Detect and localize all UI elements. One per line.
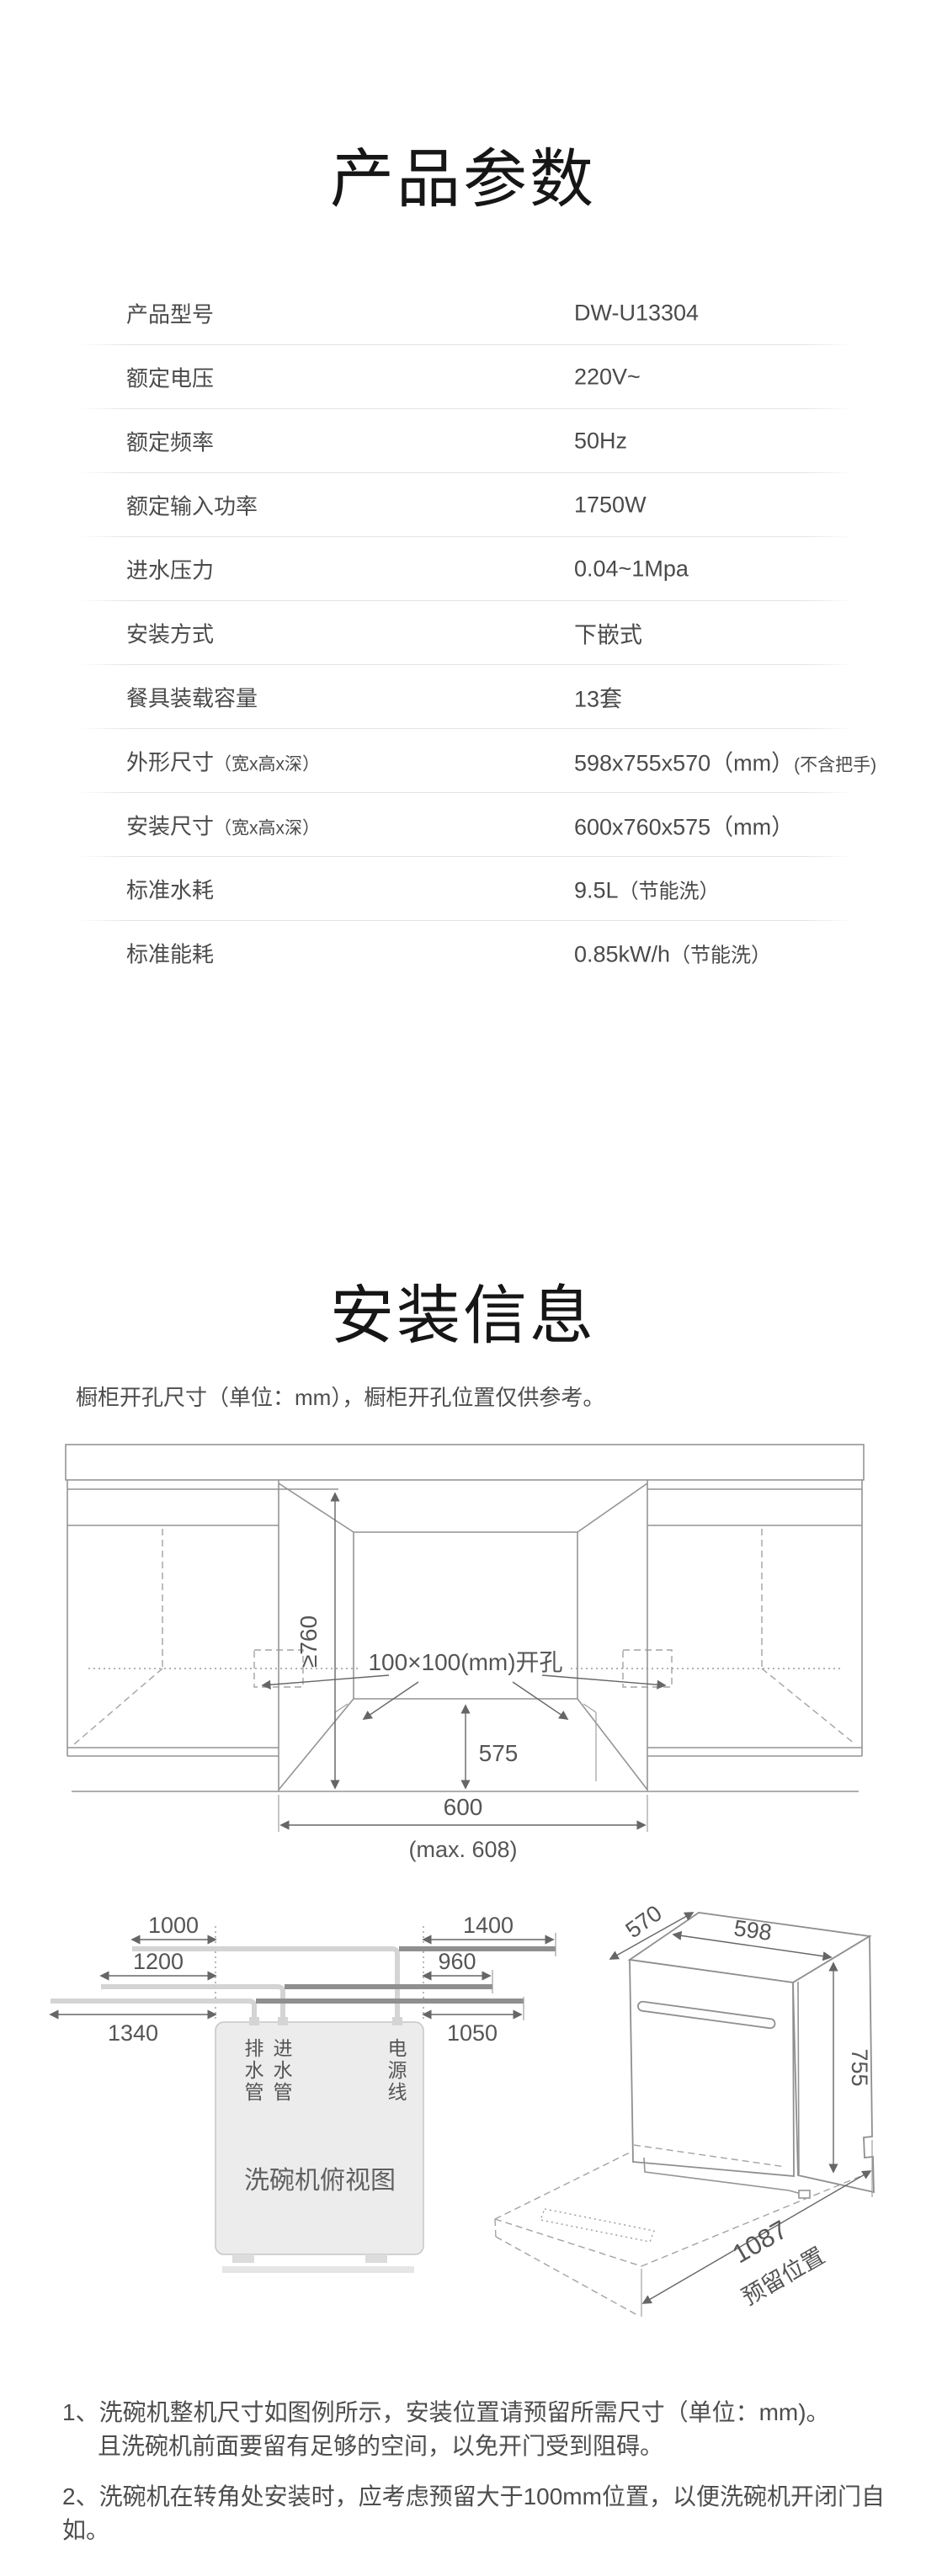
svg-text:水: 水 <box>274 2059 293 2081</box>
top-view-label: 洗碗机俯视图 <box>244 2167 396 2195</box>
power-cord-label: 电 源 线 <box>388 2037 407 2103</box>
svg-text:源: 源 <box>388 2059 407 2081</box>
dim-570-label: 570 <box>621 1900 667 1943</box>
dishwasher-body <box>630 1913 874 2198</box>
dim-1200-label: 1200 <box>133 1949 184 1974</box>
spec-label-note: （宽x高x深） <box>214 755 320 774</box>
dim-width-label: 600 <box>444 1794 483 1820</box>
right-cabinet <box>571 1480 862 1756</box>
note-2: 2、洗碗机在转角处安装时，应考虑预留大于100mm位置，以便洗碗机开闭门自如。 <box>62 2480 926 2547</box>
svg-text:电: 电 <box>388 2037 407 2059</box>
dim-755-label: 755 <box>847 2048 872 2086</box>
spec-value: DW-U13304 <box>574 301 699 326</box>
spec-value-note: （节能洗） <box>670 945 771 967</box>
dim-height-min: ≥760 <box>295 1493 335 1788</box>
note-1-line-1: 1、洗碗机整机尺寸如图例所示，安装位置请预留所需尺寸（单位：mm)。 <box>62 2396 926 2430</box>
spec-value: 220V~ <box>574 365 641 390</box>
spec-value: 50Hz <box>574 428 627 454</box>
dim-1000-label: 1000 <box>148 1913 199 1938</box>
spec-row-energy-use: 标准能耗 0.85kW/h（节能洗） <box>78 921 854 985</box>
foot <box>232 2254 254 2263</box>
spec-label: 额定频率 <box>126 430 214 455</box>
note-1-line-2: 且洗碗机前面要留有足够的空间，以免开门受到阻碍。 <box>98 2430 926 2463</box>
product-detail-page: 产品参数 产品型号 DW-U13304 额定电压 220V~ 额定频率 50Hz… <box>0 0 926 2576</box>
cabinet-cutout-note: 橱柜开孔尺寸（单位：mm），橱柜开孔位置仅供参考。 <box>76 1381 604 1412</box>
spec-label: 安装尺寸 <box>126 814 214 839</box>
spec-row-model: 产品型号 DW-U13304 <box>78 281 854 345</box>
spec-row-install-size: 安装尺寸（宽x高x深） 600x760x575（mm） <box>78 793 854 857</box>
cabinet-cutout-diagram: ≥760 100×100(mm)开孔 575 600 (max. 608) <box>34 1431 892 1903</box>
spec-label: 额定电压 <box>126 366 214 391</box>
spec-label: 标准能耗 <box>126 942 214 967</box>
cutout-callout: 100×100(mm)开孔 <box>263 1649 665 1719</box>
dishwasher-3d-diagram: 570 598 755 1087 预留位置 <box>488 1907 909 2370</box>
dim-598-label: 598 <box>732 1915 774 1945</box>
spec-row-voltage: 额定电压 220V~ <box>78 345 854 409</box>
spec-label: 安装方式 <box>126 622 214 647</box>
spec-value: 9.5L <box>574 878 619 903</box>
spec-value: 600x760x575（mm） <box>574 815 794 840</box>
dim-960-label: 960 <box>438 1949 476 1974</box>
spec-label: 产品型号 <box>126 302 214 327</box>
spec-label: 外形尺寸 <box>126 750 214 775</box>
countertop <box>66 1445 864 1489</box>
spec-row-capacity: 餐具装载容量 13套 <box>78 665 854 729</box>
spec-table: 产品型号 DW-U13304 额定电压 220V~ 额定频率 50Hz 额定输入… <box>78 281 854 985</box>
spec-row-power: 额定输入功率 1750W <box>78 473 854 537</box>
install-notes: 1、洗碗机整机尺寸如图例所示，安装位置请预留所需尺寸（单位：mm)。 且洗碗机前… <box>62 2396 926 2547</box>
spec-value: 0.04~1Mpa <box>574 556 689 582</box>
foot <box>365 2254 387 2263</box>
section-title-install-info: 安装信息 <box>0 1278 926 1355</box>
spec-row-water-pressure: 进水压力 0.04~1Mpa <box>78 537 854 601</box>
svg-text:排: 排 <box>245 2037 264 2059</box>
spec-label: 进水压力 <box>126 558 214 583</box>
spec-value: 1750W <box>574 492 647 518</box>
dishwasher-top-view-box: 排 水 管 进 水 管 电 源 线 洗碗机俯视图 <box>216 2017 423 2273</box>
section-title-product-params: 产品参数 <box>0 141 926 218</box>
spec-value: 13套 <box>574 687 622 712</box>
cutout-label: 100×100(mm)开孔 <box>368 1649 562 1675</box>
spec-label: 额定输入功率 <box>126 494 258 519</box>
drain-pipe-label: 排 水 管 <box>245 2037 264 2103</box>
spec-value: 598x755x570（mm） <box>574 751 794 776</box>
svg-text:进: 进 <box>274 2037 293 2059</box>
dim-width: 600 (max. 608) <box>279 1794 647 1862</box>
dim-1340-label: 1340 <box>108 2020 158 2046</box>
spec-row-install-type: 安装方式 下嵌式 <box>78 601 854 665</box>
dim-depth: 575 <box>466 1706 518 1788</box>
spec-value-note: (不含把手) <box>794 756 876 775</box>
spec-label-note: （宽x高x深） <box>214 819 320 838</box>
svg-text:管: 管 <box>274 2081 293 2103</box>
spec-label: 餐具装载容量 <box>126 686 258 711</box>
spec-row-outer-size: 外形尺寸（宽x高x深） 598x755x570（mm）(不含把手) <box>78 729 854 793</box>
dim-depth-label: 575 <box>479 1740 519 1766</box>
svg-text:线: 线 <box>388 2081 407 2103</box>
dim-width-max-label: (max. 608) <box>408 1837 517 1862</box>
spec-label: 标准水耗 <box>126 878 214 903</box>
dim-height-min-label: ≥760 <box>295 1615 322 1668</box>
base-bar <box>222 2266 414 2273</box>
spec-value-note: （节能洗） <box>619 881 720 903</box>
svg-text:管: 管 <box>245 2081 264 2103</box>
inlet-pipe-label: 进 水 管 <box>274 2037 293 2103</box>
spec-row-water-use: 标准水耗 9.5L（节能洗） <box>78 857 854 921</box>
spec-value: 下嵌式 <box>574 623 642 648</box>
svg-text:水: 水 <box>245 2059 264 2081</box>
spec-row-frequency: 额定频率 50Hz <box>78 409 854 473</box>
spec-value: 0.85kW/h <box>574 942 670 967</box>
